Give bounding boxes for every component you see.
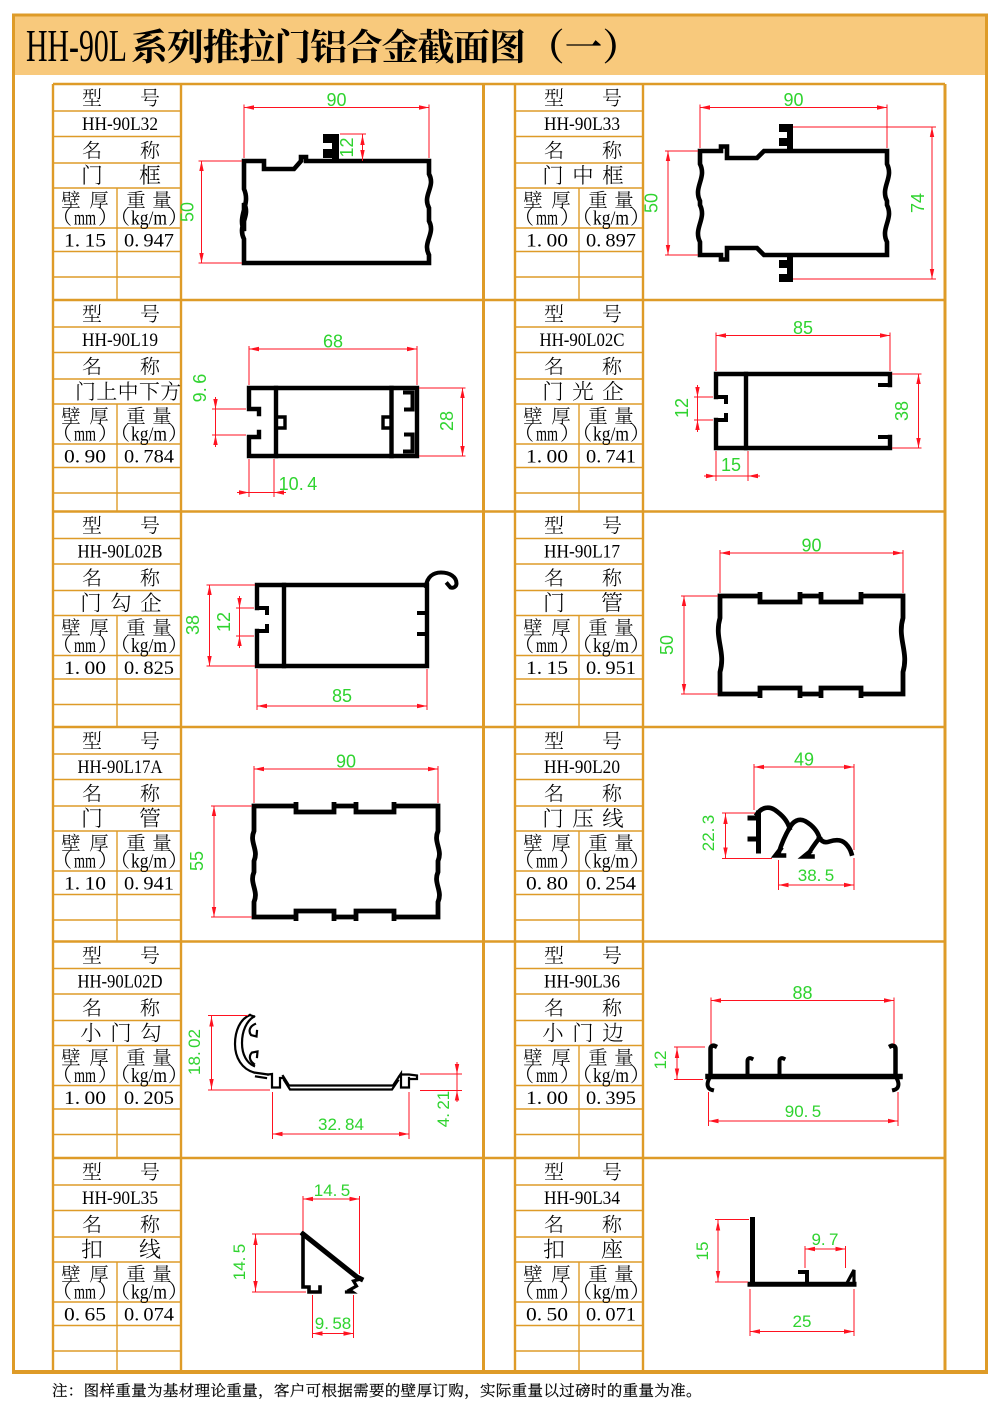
svg-text:1. 00: 1. 00 xyxy=(526,1088,568,1109)
svg-text:mm: mm xyxy=(536,1065,558,1087)
svg-text:kg/m: kg/m xyxy=(593,851,629,873)
svg-text:HH-90L17: HH-90L17 xyxy=(544,542,620,563)
svg-text:9. 7: 9. 7 xyxy=(811,1230,838,1249)
svg-text:55: 55 xyxy=(187,851,207,871)
svg-text:22. 3: 22. 3 xyxy=(699,815,718,852)
svg-text:0. 784: 0. 784 xyxy=(124,447,175,468)
svg-text:0. 951: 0. 951 xyxy=(586,658,636,679)
svg-text:kg/m: kg/m xyxy=(593,635,629,657)
svg-text:12: 12 xyxy=(672,398,692,418)
svg-text:0. 825: 0. 825 xyxy=(124,658,174,679)
svg-text:mm: mm xyxy=(536,851,558,873)
svg-text:mm: mm xyxy=(536,1282,558,1304)
svg-text:HH-90L17A: HH-90L17A xyxy=(78,757,163,778)
svg-text:14. 5: 14. 5 xyxy=(314,1181,351,1200)
svg-text:90: 90 xyxy=(801,536,821,556)
svg-text:kg/m: kg/m xyxy=(593,1282,629,1304)
svg-text:50: 50 xyxy=(178,202,198,222)
svg-text:kg/m: kg/m xyxy=(593,424,629,446)
svg-text:HH-90L19: HH-90L19 xyxy=(82,330,158,351)
svg-text:38. 5: 38. 5 xyxy=(798,866,835,885)
svg-text:9. 6: 9. 6 xyxy=(190,374,210,403)
svg-text:15: 15 xyxy=(721,455,741,475)
svg-text:mm: mm xyxy=(74,1282,96,1304)
svg-text:1. 00: 1. 00 xyxy=(526,447,568,468)
svg-text:mm: mm xyxy=(74,424,96,446)
svg-text:HH-90L02D: HH-90L02D xyxy=(78,972,163,993)
svg-text:90: 90 xyxy=(783,90,803,110)
svg-text:1. 10: 1. 10 xyxy=(64,874,106,895)
svg-text:mm: mm xyxy=(74,1065,96,1087)
svg-text:kg/m: kg/m xyxy=(593,1065,629,1087)
svg-text:HH-90L35: HH-90L35 xyxy=(82,1188,158,1209)
svg-text:0. 254: 0. 254 xyxy=(586,874,637,895)
svg-text:50: 50 xyxy=(642,193,662,213)
svg-text:0. 205: 0. 205 xyxy=(124,1088,174,1109)
svg-text:mm: mm xyxy=(74,851,96,873)
svg-text:0. 90: 0. 90 xyxy=(64,447,106,468)
svg-text:12: 12 xyxy=(651,1051,670,1070)
svg-text:38: 38 xyxy=(892,401,912,421)
svg-text:kg/m: kg/m xyxy=(593,208,629,230)
svg-text:85: 85 xyxy=(332,686,352,706)
svg-text:0. 941: 0. 941 xyxy=(124,874,174,895)
svg-text:0. 50: 0. 50 xyxy=(526,1305,568,1326)
svg-text:49: 49 xyxy=(794,750,814,770)
svg-text:28: 28 xyxy=(437,411,457,431)
svg-text:kg/m: kg/m xyxy=(131,424,167,446)
svg-text:0. 897: 0. 897 xyxy=(586,231,636,252)
svg-text:HH-90L02B: HH-90L02B xyxy=(78,542,163,563)
svg-text:38: 38 xyxy=(183,615,203,635)
svg-text:74: 74 xyxy=(908,193,928,213)
svg-text:9. 58: 9. 58 xyxy=(315,1314,352,1333)
svg-text:90: 90 xyxy=(336,752,356,772)
svg-text:HH-90L02C: HH-90L02C xyxy=(540,330,625,351)
svg-text:12: 12 xyxy=(337,137,357,157)
svg-text:mm: mm xyxy=(74,635,96,657)
svg-text:50: 50 xyxy=(657,635,677,655)
svg-text:kg/m: kg/m xyxy=(131,851,167,873)
svg-text:88: 88 xyxy=(792,983,812,1003)
svg-text:mm: mm xyxy=(536,424,558,446)
svg-text:90: 90 xyxy=(326,90,346,110)
svg-text:32. 84: 32. 84 xyxy=(318,1115,364,1134)
svg-text:HH-90L: HH-90L xyxy=(26,20,127,71)
svg-text:kg/m: kg/m xyxy=(131,208,167,230)
svg-text:HH-90L20: HH-90L20 xyxy=(544,757,620,778)
svg-text:HH-90L32: HH-90L32 xyxy=(82,114,158,135)
svg-text:85: 85 xyxy=(793,318,813,338)
svg-text:12: 12 xyxy=(214,612,234,632)
svg-text:mm: mm xyxy=(536,635,558,657)
svg-text:25: 25 xyxy=(793,1312,812,1331)
svg-text:0. 80: 0. 80 xyxy=(526,874,568,895)
svg-text:18. 02: 18. 02 xyxy=(185,1029,204,1075)
svg-text:0. 071: 0. 071 xyxy=(586,1305,636,1326)
svg-text:14. 5: 14. 5 xyxy=(230,1244,249,1281)
svg-text:kg/m: kg/m xyxy=(131,1282,167,1304)
svg-text:4. 21: 4. 21 xyxy=(434,1091,453,1128)
svg-text:1. 00: 1. 00 xyxy=(64,658,106,679)
svg-text:kg/m: kg/m xyxy=(131,1065,167,1087)
svg-text:HH-90L33: HH-90L33 xyxy=(544,114,620,135)
svg-text:68: 68 xyxy=(323,332,343,352)
svg-text:0. 65: 0. 65 xyxy=(64,1305,106,1326)
svg-text:kg/m: kg/m xyxy=(131,635,167,657)
svg-text:mm: mm xyxy=(536,208,558,230)
svg-text:15: 15 xyxy=(693,1242,712,1261)
svg-text:HH-90L36: HH-90L36 xyxy=(544,972,620,993)
svg-text:0. 741: 0. 741 xyxy=(586,447,636,468)
svg-text:mm: mm xyxy=(74,208,96,230)
svg-text:1. 00: 1. 00 xyxy=(64,1088,106,1109)
svg-text:HH-90L34: HH-90L34 xyxy=(544,1188,620,1209)
svg-text:1. 15: 1. 15 xyxy=(64,231,106,252)
svg-text:1. 00: 1. 00 xyxy=(526,231,568,252)
svg-text:0. 947: 0. 947 xyxy=(124,231,174,252)
svg-text:0. 395: 0. 395 xyxy=(586,1088,636,1109)
svg-text:0. 074: 0. 074 xyxy=(124,1305,175,1326)
svg-text:1. 15: 1. 15 xyxy=(526,658,568,679)
svg-text:90. 5: 90. 5 xyxy=(785,1102,822,1121)
svg-text:10. 4: 10. 4 xyxy=(279,474,318,494)
